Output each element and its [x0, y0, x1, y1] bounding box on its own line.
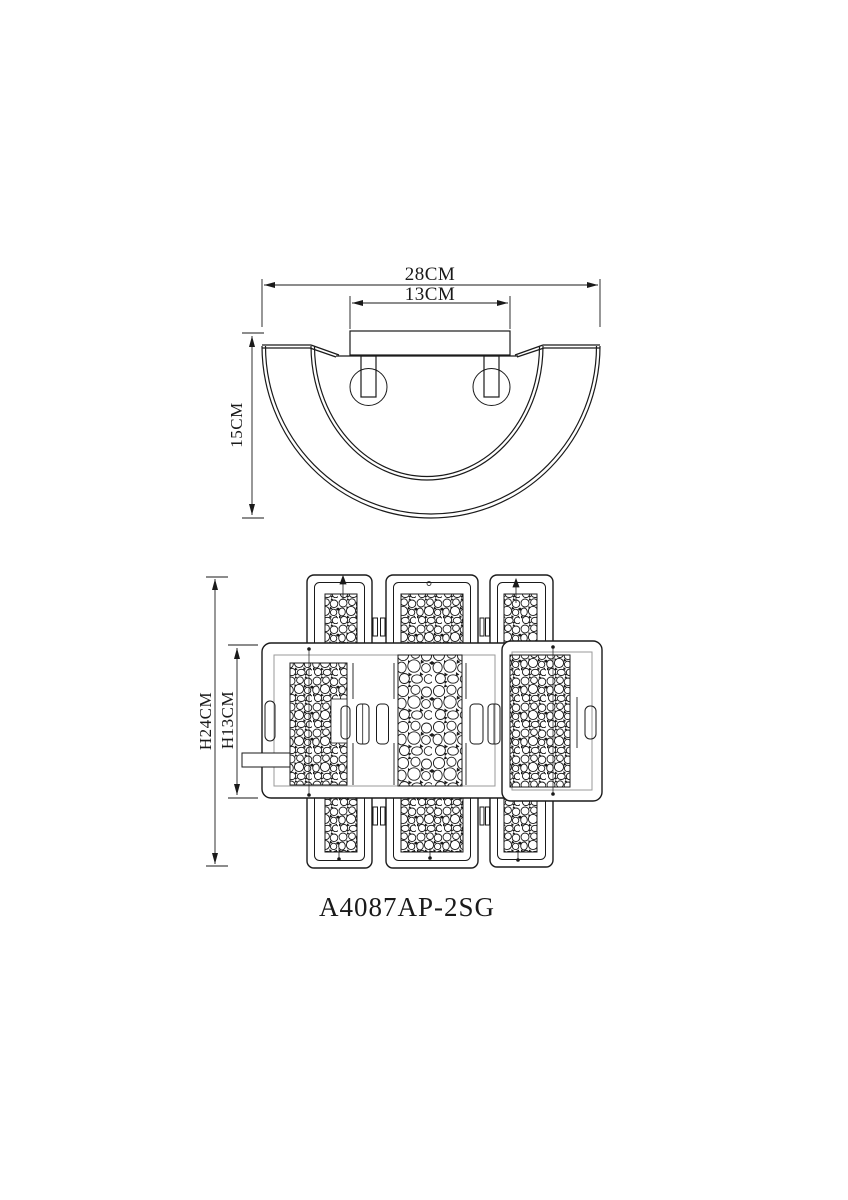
dim-label-total-height: H24CM — [196, 641, 216, 801]
front-view-drawing — [206, 575, 602, 868]
mounting-plate — [350, 331, 510, 355]
diffuser-inner-arc — [311, 346, 543, 480]
technical-drawing-page: 28CM 13CM 15CM H24CM H13CM A4087AP-2SG — [0, 0, 848, 1200]
dim-label-total-width: 28CM — [350, 265, 510, 285]
wall-lamp-technical-drawing — [0, 0, 848, 1200]
body-band-details — [242, 646, 596, 797]
dim-label-depth: 15CM — [227, 345, 247, 505]
model-number: A4087AP-2SG — [247, 892, 567, 923]
band-crystal-right — [510, 655, 570, 787]
bulb-socket-left — [350, 356, 387, 406]
bulb-socket-right — [473, 356, 510, 406]
wall-bracket — [242, 753, 290, 767]
band-crystal-center — [398, 655, 462, 786]
side-view-drawing — [242, 279, 600, 518]
dim-label-plate-width: 13CM — [350, 285, 510, 305]
dim-label-body-height: H13CM — [218, 640, 238, 800]
